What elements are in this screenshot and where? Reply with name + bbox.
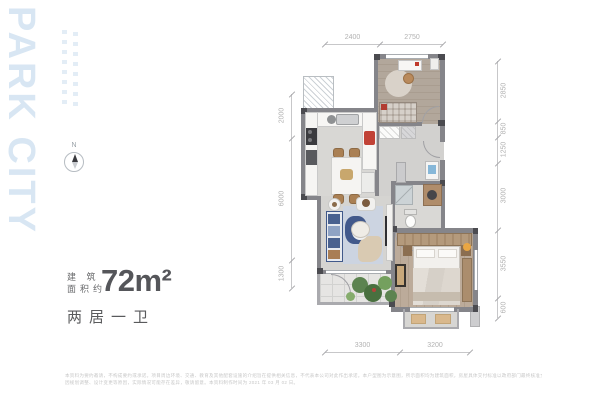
plant (346, 292, 355, 301)
bedside-lamp (463, 243, 471, 251)
sofa-cushion (328, 226, 340, 236)
sofa-cushion (328, 238, 340, 248)
balcony-wall (317, 274, 320, 305)
dim-label-bottom-1: 3300 (325, 342, 400, 349)
wall-pillar (317, 268, 323, 274)
plant (378, 276, 392, 290)
wall-pillar (438, 120, 445, 126)
dim-label-top-2: 2750 (381, 34, 443, 41)
wall-pillar (473, 305, 478, 312)
wall-pillar (473, 228, 478, 234)
dim-line-top (325, 44, 443, 45)
master-side-window (474, 250, 478, 290)
dim-label-left-2: 6000 (279, 180, 286, 218)
disclaimer-line-2: 因规划调整、设计变更等原因，实际情况可能存在差异，敬请留意。本资料制作时间为 2… (65, 380, 465, 386)
toilet-bowl (405, 215, 416, 228)
dim-label-left-3: 1300 (279, 255, 286, 293)
kitchen-pot (327, 115, 336, 124)
bedroom2-cabinet (430, 58, 439, 70)
dim-tick (289, 91, 295, 97)
dim-label-left-1: 2000 (279, 97, 286, 135)
dim-label-right-5: 3550 (501, 245, 508, 283)
dim-label-right-4: 3000 (501, 177, 508, 215)
balcony-wall (403, 309, 405, 329)
stove-burner (308, 138, 312, 142)
table-centerpiece (340, 169, 353, 180)
side-table-item (332, 202, 337, 207)
shower (395, 185, 413, 205)
tall-cabinet (396, 162, 406, 183)
compass-north-label: N (66, 142, 82, 149)
dresser-front (397, 266, 404, 285)
balcony-wall (457, 309, 459, 329)
compass-needle-south (72, 162, 78, 169)
dim-line-right (497, 61, 498, 318)
bed-throw (413, 292, 460, 301)
stove-burner (308, 130, 312, 134)
bedroom2-chair (403, 73, 414, 84)
dim-tick (467, 349, 473, 355)
tv-console (386, 204, 393, 261)
dim-tick (495, 58, 501, 64)
wall (440, 54, 445, 142)
washing-machine-door (428, 165, 436, 174)
master-bench (462, 258, 472, 302)
plant-berry (372, 288, 376, 292)
dim-tick (289, 257, 295, 263)
pillow (416, 249, 435, 258)
balcony-mat (411, 314, 426, 324)
area-value: 72m² (101, 263, 171, 299)
desk-accent (415, 62, 419, 66)
disclaimer-line-1: 本资料为要约邀请，不构成要约或承诺。项目周边环境、交通、教育及其他配套设施的介绍… (65, 373, 542, 379)
wall-pillar (438, 54, 445, 60)
dim-label-right-1: 2850 (501, 72, 508, 110)
tv-screen (385, 216, 387, 246)
balcony-wall (403, 327, 459, 329)
balcony-wall (317, 302, 395, 305)
wall-pillar (374, 54, 380, 60)
brand-vertical-text: PARK CITY (2, 6, 40, 235)
rug-pattern-beige (358, 236, 382, 262)
compass-needle-north (72, 154, 78, 162)
kitchen-sink-dark (306, 150, 317, 165)
kitchen-utensils-red (364, 131, 375, 145)
pillow (438, 249, 457, 258)
layout-label: 两居一卫 (67, 306, 155, 327)
balcony-mat (435, 314, 451, 324)
nightstand (403, 246, 412, 256)
wall (317, 196, 321, 274)
dim-label-bottom-2: 3200 (400, 342, 470, 349)
slogan-marks-column-2 (73, 32, 78, 106)
dim-label-right-3: 1250 (501, 131, 508, 169)
area-label-line1: 建 筑 (67, 272, 100, 283)
plant (385, 290, 397, 302)
vanity-sink (427, 190, 437, 200)
armchair (351, 221, 370, 238)
dim-tick (289, 135, 295, 141)
dim-tick (289, 285, 295, 291)
living-window (326, 270, 386, 274)
dim-tick (495, 227, 501, 233)
sofa-cushion (328, 214, 340, 224)
tray-item (362, 199, 370, 207)
bedroom2-window (386, 54, 428, 59)
master-wardrobe (397, 233, 472, 246)
master-window (410, 307, 454, 312)
hall-cabinet (401, 126, 416, 139)
slogan-marks-column-1 (62, 30, 67, 104)
kitchen-sink (336, 114, 359, 125)
bedroom2-pillow-red (381, 104, 387, 110)
dim-tick (440, 41, 446, 47)
dim-label-top-1: 2400 (325, 34, 380, 41)
equipment-balcony-floor (303, 76, 334, 112)
sofa-pillow-brown (328, 250, 340, 259)
dim-label-right-6: 600 (501, 289, 508, 327)
hall-wardrobe (379, 126, 400, 139)
